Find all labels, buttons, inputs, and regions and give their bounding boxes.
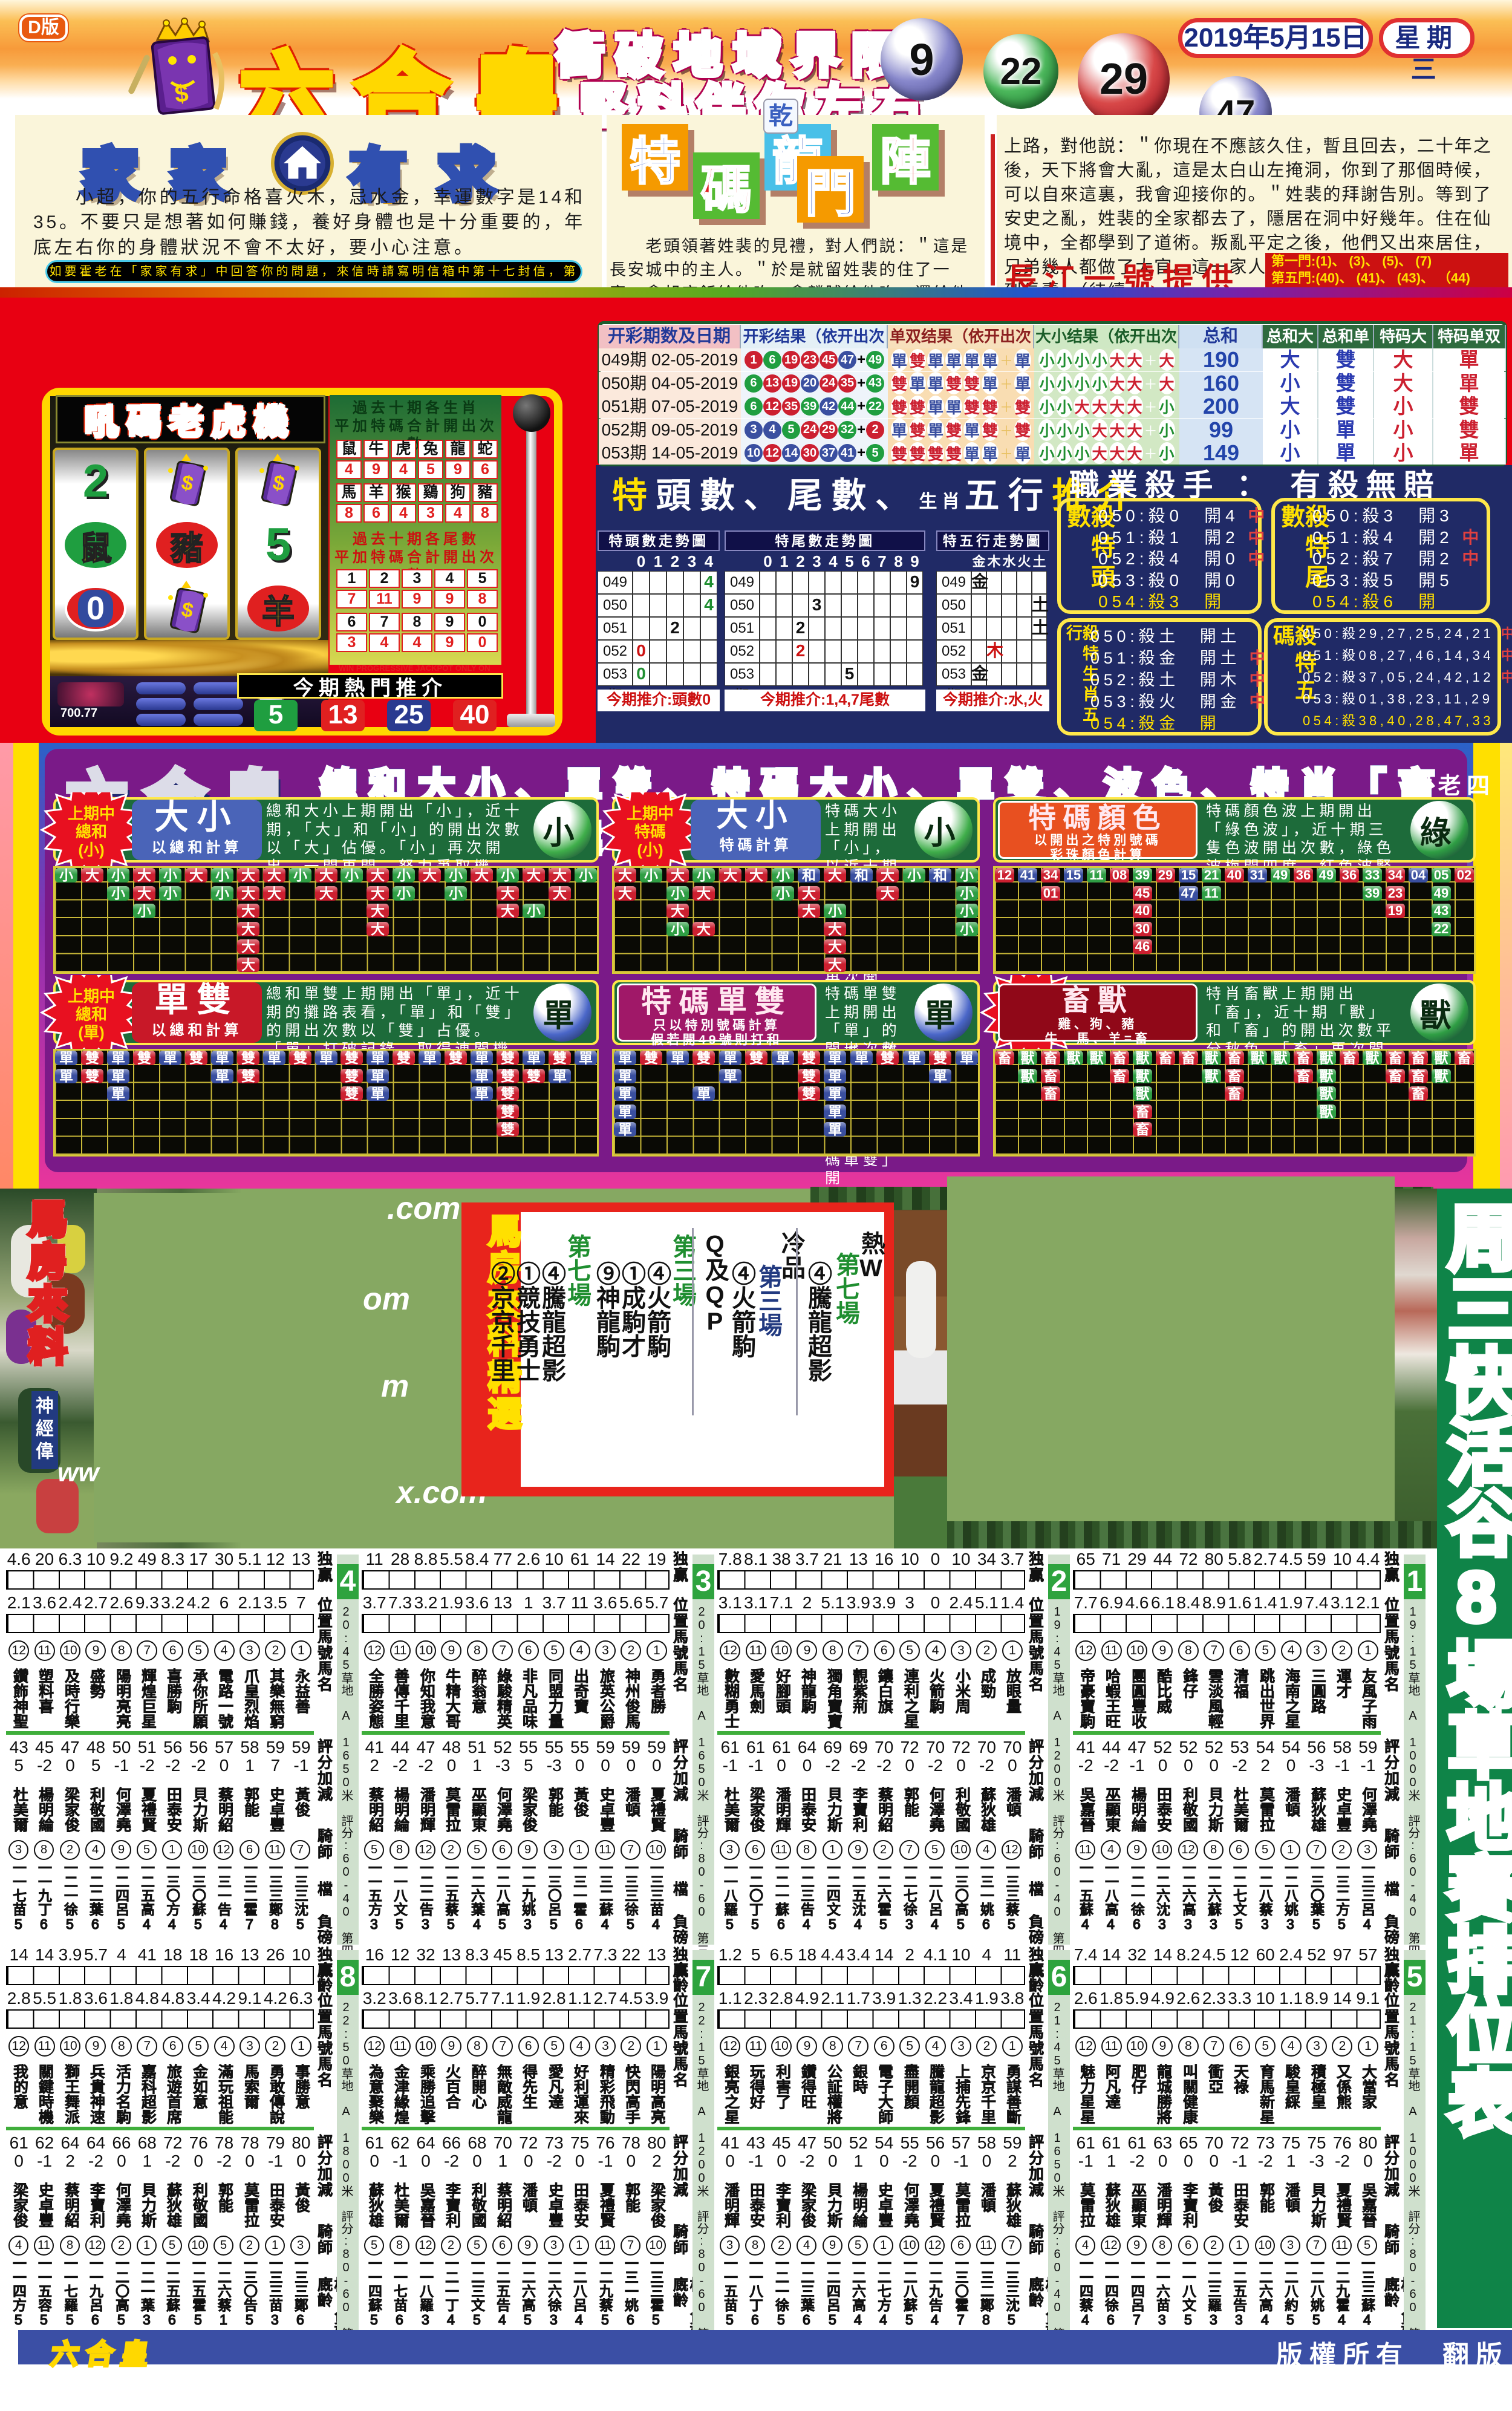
svg-text:上期中: 上期中 bbox=[68, 987, 115, 1005]
svg-text:上期中: 上期中 bbox=[627, 804, 674, 823]
svg-text:(單): (單) bbox=[78, 1023, 104, 1042]
svg-text:$: $ bbox=[174, 80, 190, 108]
svg-text:特碼: 特碼 bbox=[634, 823, 666, 841]
svg-text:總和: 總和 bbox=[76, 823, 107, 841]
svg-text:總和: 總和 bbox=[76, 1005, 107, 1023]
svg-text:(小): (小) bbox=[78, 841, 104, 859]
svg-text:(小): (小) bbox=[637, 841, 663, 859]
svg-text:上期中: 上期中 bbox=[68, 804, 115, 823]
